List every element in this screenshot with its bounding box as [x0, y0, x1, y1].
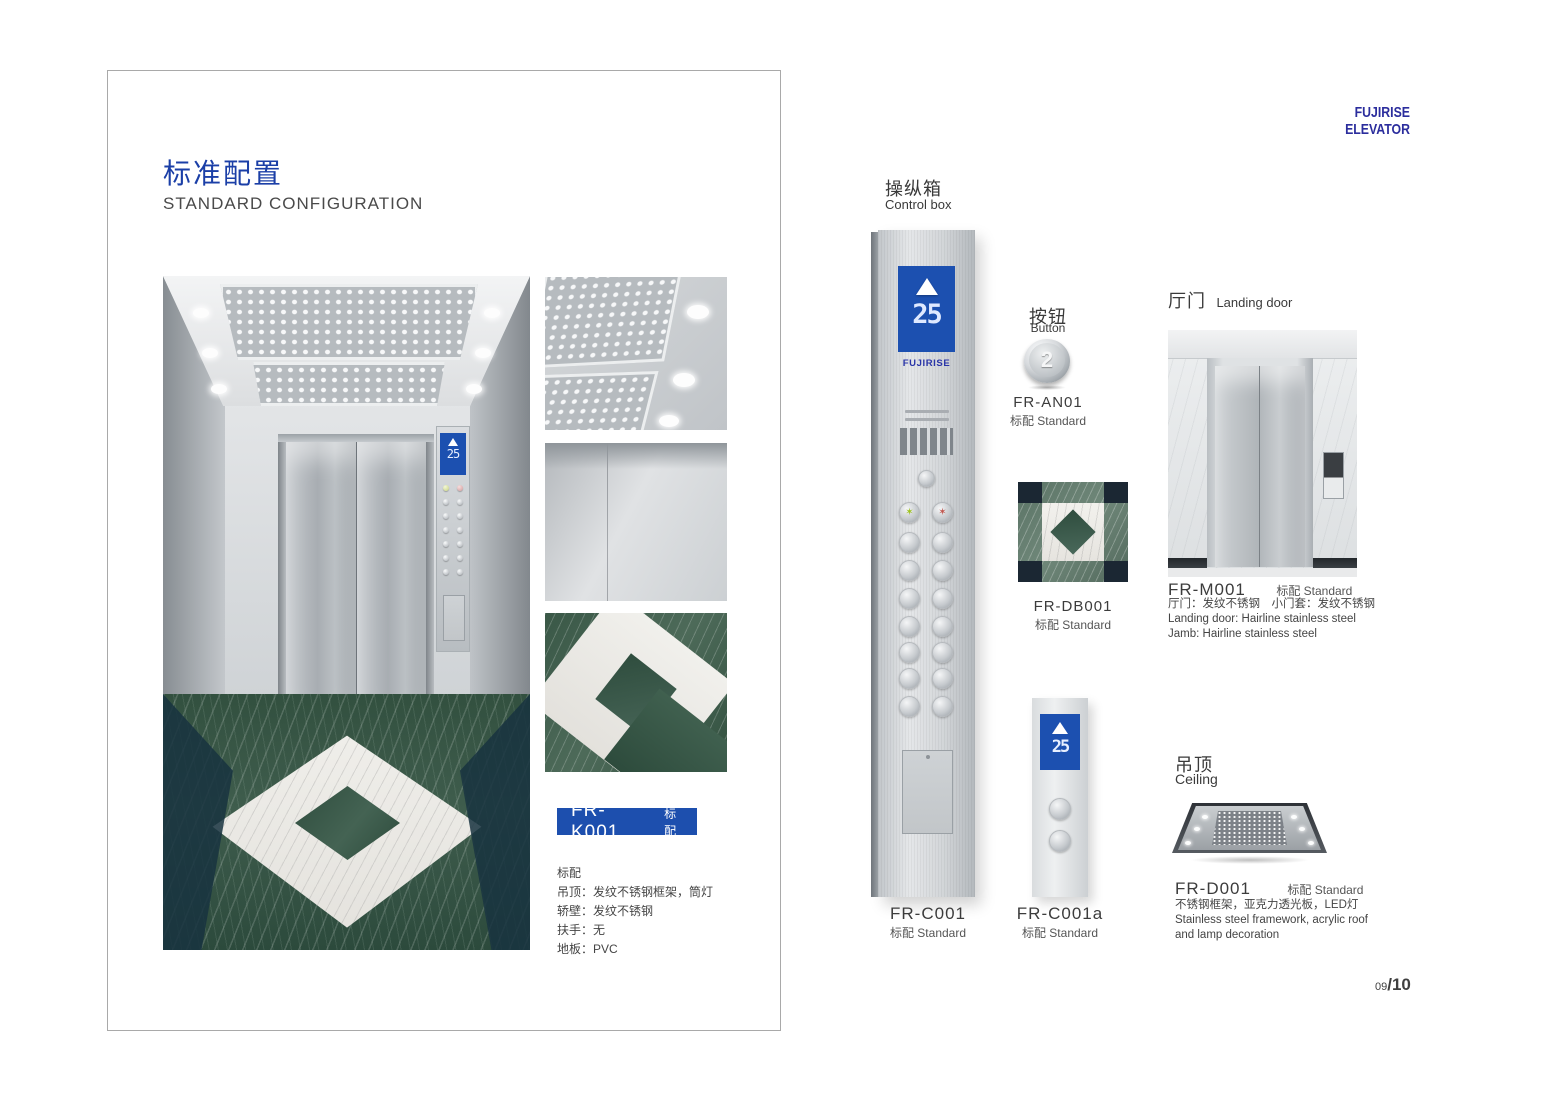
door-open-button: ✶ — [899, 502, 920, 523]
floor-indicator: 25 — [898, 299, 955, 330]
downlight — [1194, 827, 1200, 831]
speaker-grille — [900, 428, 953, 455]
spec-list: 标配 吊顶：发纹不锈钢框架，筒灯 轿壁：发纹不锈钢 扶手：无 地板：PVC — [557, 864, 767, 959]
tile-corner — [1104, 482, 1128, 503]
floor-button — [932, 642, 953, 663]
button-shadow — [1028, 385, 1066, 390]
cab-floor — [163, 694, 530, 950]
ceiling-detail-panel — [545, 277, 683, 368]
cab-floor-indicator: 25 — [440, 447, 466, 461]
floor-button — [457, 541, 463, 547]
desc-line: 不锈钢框架，亚克力透光板，LED灯 — [1175, 898, 1405, 913]
landing-door-title-en: Landing door — [1216, 295, 1292, 310]
floor-button — [443, 527, 449, 533]
control-box-tag: 标配 Standard — [878, 924, 978, 941]
ceiling-model: FR-D001 — [1175, 879, 1251, 898]
wall-shadow — [545, 443, 727, 469]
downlight — [1291, 815, 1297, 819]
downlight — [202, 348, 218, 358]
floor-button — [932, 560, 953, 581]
cab-cop-display: 25 — [440, 433, 466, 475]
door-post-right — [426, 434, 434, 696]
ceiling-detail-photo — [545, 277, 727, 430]
cab-door-right — [357, 442, 426, 694]
ceiling-led-panel — [1212, 811, 1287, 845]
page-number-total: /10 — [1387, 975, 1411, 994]
floor-button — [899, 668, 920, 689]
floor-button — [899, 642, 920, 663]
fine-print-line — [905, 418, 949, 421]
desc-line: Landing door: Hairline stainless steel — [1168, 612, 1398, 627]
floor-button — [443, 555, 449, 561]
screw — [926, 755, 930, 759]
floor-button — [457, 527, 463, 533]
floor-button — [899, 532, 920, 553]
floor-button — [899, 696, 920, 717]
downlight — [1202, 815, 1208, 819]
button-model: FR-AN01 — [1000, 394, 1096, 411]
downlight — [1299, 827, 1305, 831]
door-header — [278, 434, 434, 442]
catalog-page: FUJIRISE ELEVATOR 标准配置 STANDARD CONFIGUR… — [0, 0, 1559, 1103]
tile-corner — [1018, 561, 1042, 582]
floor-button — [443, 513, 449, 519]
baseboard-left — [1168, 558, 1207, 568]
desc-line: 厅门：发纹不锈钢 小门套：发纹不锈钢 — [1168, 597, 1398, 612]
model-code: FR-K001 — [571, 800, 636, 844]
floor-button — [899, 616, 920, 637]
door-close-button — [457, 485, 463, 491]
spec-line: 轿壁：发纹不锈钢 — [557, 902, 767, 921]
tile-corner — [1104, 561, 1128, 582]
landing-door-desc: 厅门：发纹不锈钢 小门套：发纹不锈钢 Landing door: Hairlin… — [1168, 597, 1398, 642]
floor-button — [457, 499, 463, 505]
control-box-display: 25 — [898, 266, 955, 352]
ceiling-tag: 标配 Standard — [1287, 883, 1363, 897]
page-title-en: STANDARD CONFIGURATION — [163, 194, 423, 214]
downlight — [1185, 841, 1191, 845]
hall-station-model: FR-C001a — [1010, 904, 1110, 924]
panel-side-edge — [871, 232, 878, 897]
ceiling-desc: 不锈钢框架，亚克力透光板，LED灯 Stainless steel framew… — [1175, 898, 1405, 943]
floor-detail-photo — [545, 613, 727, 772]
floor-button — [457, 555, 463, 561]
control-box-title-en: Control box — [885, 197, 951, 212]
door-header-wall — [1168, 330, 1357, 359]
control-box-photo: 25 FUJIRISE ✶ ✶ — [878, 230, 975, 897]
floor-button — [932, 616, 953, 637]
downlight — [466, 384, 482, 394]
cab-ceiling-light-panel-2 — [249, 362, 449, 406]
cop-access-panel — [443, 595, 465, 641]
up-arrow-icon — [1052, 722, 1068, 734]
hall-station-display: 25 — [1040, 714, 1080, 770]
ceiling-title-en: Ceiling — [1175, 771, 1218, 787]
floor-tile-photo — [1018, 482, 1128, 582]
landing-door-header: 厅门 Landing door — [1168, 287, 1292, 313]
landing-door-title-zh: 厅门 — [1168, 291, 1206, 311]
button-tag: 标配 Standard — [1000, 412, 1096, 429]
page-number-current: 09 — [1375, 981, 1387, 993]
hall-station-photo: 25 — [1032, 698, 1088, 897]
hall-up-button — [1049, 798, 1071, 820]
floor-button — [457, 513, 463, 519]
floor-button — [932, 532, 953, 553]
floor-tile-tag: 标配 Standard — [1018, 616, 1128, 633]
wall-detail-photo — [545, 443, 727, 601]
button-title-en: Button — [1008, 321, 1088, 335]
up-arrow-icon — [448, 438, 458, 446]
landing-door-photo — [1168, 330, 1357, 577]
floor-button — [443, 541, 449, 547]
floor-button — [932, 696, 953, 717]
desc-line: and lamp decoration — [1175, 928, 1405, 943]
floor-button — [457, 569, 463, 575]
door-gap — [1259, 366, 1260, 567]
ceiling-detail-panel-2 — [545, 371, 659, 430]
floor-button — [443, 499, 449, 505]
spec-line: 地板：PVC — [557, 940, 767, 959]
access-panel — [902, 750, 953, 834]
downlight — [211, 384, 227, 394]
downlight — [475, 348, 491, 358]
downlight — [673, 373, 695, 387]
desc-line: Stainless steel framework, acrylic roof — [1175, 913, 1405, 928]
hall-station-tag: 标配 Standard — [1010, 924, 1110, 941]
floor-button — [932, 588, 953, 609]
downlight — [687, 305, 709, 319]
cab-ceiling-light-panel — [220, 284, 478, 360]
landing-door-tag: 标配 Standard — [1276, 584, 1352, 598]
spec-line: 吊顶：发纹不锈钢框架，筒灯 — [557, 883, 767, 902]
floor-button — [899, 560, 920, 581]
floor-tile-model: FR-DB001 — [1018, 598, 1128, 615]
floor-button — [932, 668, 953, 689]
door-open-button — [443, 485, 449, 491]
ceiling-model-row: FR-D001 标配 Standard — [1175, 879, 1363, 899]
spec-line: 标配 — [557, 864, 767, 883]
brand-logo: FUJIRISE ELEVATOR — [1303, 104, 1410, 138]
ceiling-panel-photo — [1172, 803, 1327, 853]
floor-button — [443, 569, 449, 575]
model-tag: 标配 — [664, 805, 683, 839]
elevator-cab-photo: 25 — [163, 276, 530, 950]
button-number: 2 — [1041, 347, 1053, 373]
desc-line: Jamb: Hairline stainless steel — [1168, 627, 1398, 642]
ceiling-shadow — [1190, 856, 1310, 864]
downlight — [484, 308, 500, 318]
page-title-zh: 标准配置 — [163, 152, 283, 192]
downlight — [659, 415, 679, 427]
door-close-button: ✶ — [932, 502, 953, 523]
lobby-floor — [1168, 568, 1357, 577]
downlight — [1308, 841, 1314, 845]
downlight — [193, 308, 209, 318]
fine-print-line — [905, 410, 949, 413]
page-number: 09/10 — [1375, 975, 1411, 995]
elevator-button-photo: 2 — [1024, 339, 1070, 383]
tile-corner — [1018, 482, 1042, 503]
up-arrow-icon — [916, 278, 938, 295]
landing-doors — [1215, 366, 1305, 567]
hall-indicator-panel — [1323, 452, 1344, 499]
spec-line: 扶手：无 — [557, 921, 767, 940]
button-face: 2 — [1029, 343, 1065, 377]
baseboard-right — [1313, 558, 1357, 568]
control-box-model: FR-C001 — [878, 904, 978, 924]
hall-down-button — [1049, 830, 1071, 852]
floor-button — [899, 588, 920, 609]
door-post-left — [278, 434, 286, 696]
model-bar: FR-K001 标配 — [557, 808, 697, 835]
keyhole — [918, 470, 935, 487]
hall-floor-indicator: 25 — [1040, 737, 1080, 757]
cab-door-left — [286, 442, 356, 694]
display-brand-text: FUJIRISE — [878, 358, 975, 369]
door-gap — [356, 442, 357, 694]
cab-cop: 25 — [436, 426, 470, 652]
